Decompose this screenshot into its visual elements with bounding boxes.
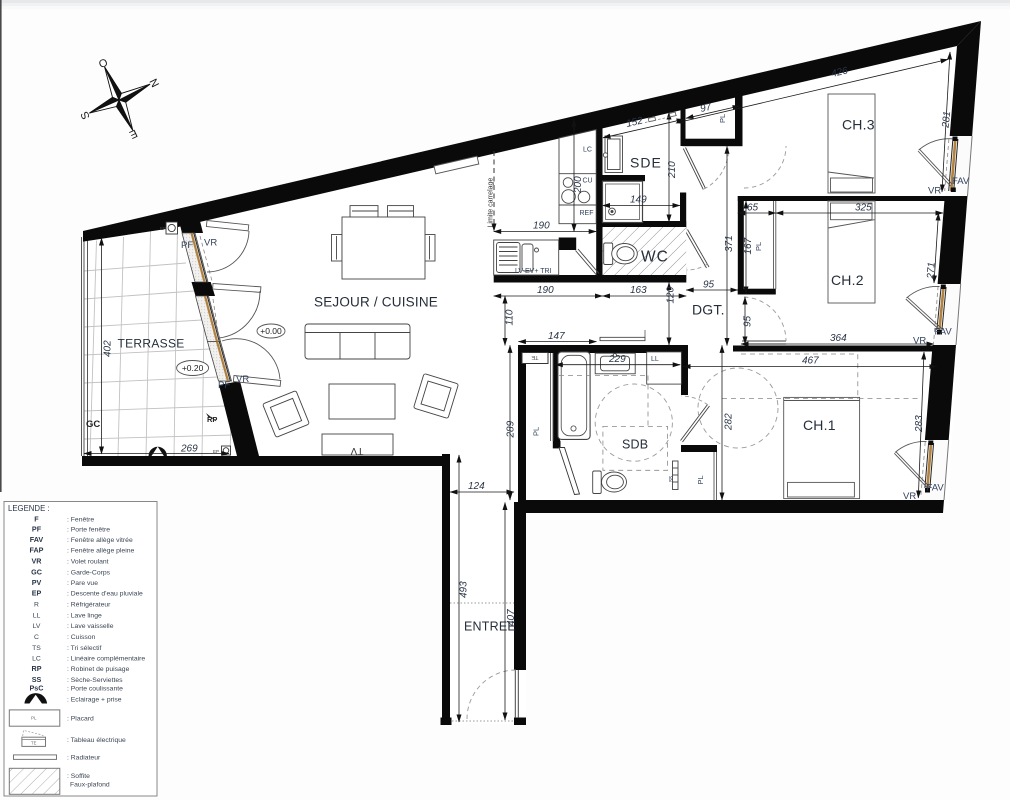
svg-text:95: 95 bbox=[703, 280, 715, 291]
svg-text:493: 493 bbox=[459, 581, 470, 598]
svg-text:REF: REF bbox=[580, 210, 594, 217]
svg-text:PL: PL bbox=[718, 114, 727, 123]
svg-text:+0.20: +0.20 bbox=[182, 363, 204, 373]
svg-text:467: 467 bbox=[802, 356, 819, 367]
svg-text:EP: EP bbox=[160, 226, 166, 231]
svg-text:VR: VR bbox=[236, 374, 249, 385]
svg-text:: Radiateur: : Radiateur bbox=[67, 755, 101, 762]
svg-text:TE: TE bbox=[31, 741, 37, 746]
svg-text:: Fenêtre: : Fenêtre bbox=[67, 517, 94, 524]
svg-text:GC: GC bbox=[86, 419, 100, 430]
svg-text:VR: VR bbox=[928, 186, 941, 197]
svg-text:F: F bbox=[34, 515, 39, 524]
svg-text:200: 200 bbox=[573, 176, 584, 194]
svg-text:FAP: FAP bbox=[30, 546, 44, 555]
svg-text:PL: PL bbox=[31, 716, 37, 721]
svg-text:C: C bbox=[34, 634, 39, 641]
svg-text:: Descente d'eau pluviale: : Descente d'eau pluviale bbox=[67, 591, 143, 598]
svg-text:167: 167 bbox=[743, 237, 754, 254]
svg-text:PV: PV bbox=[32, 578, 42, 587]
svg-text:325: 325 bbox=[855, 203, 872, 214]
svg-text:PL: PL bbox=[696, 475, 705, 484]
svg-text:: Soffite: : Soffite bbox=[67, 773, 90, 780]
svg-text:GC: GC bbox=[31, 567, 42, 576]
svg-text:: Lave linge: : Lave linge bbox=[67, 612, 102, 619]
svg-text:WC: WC bbox=[641, 249, 669, 266]
svg-text:: Porte coulissante: : Porte coulissante bbox=[67, 686, 123, 693]
svg-text:CH.1: CH.1 bbox=[803, 417, 836, 433]
svg-text:: Fenêtre allège pleine: : Fenêtre allège pleine bbox=[67, 548, 134, 555]
svg-text:: Placard: : Placard bbox=[67, 716, 94, 723]
svg-text:124: 124 bbox=[468, 481, 485, 492]
svg-text:: Réfrigérateur: : Réfrigérateur bbox=[67, 602, 111, 609]
svg-text:LC: LC bbox=[32, 656, 41, 663]
svg-text:: Pare vue: : Pare vue bbox=[67, 580, 98, 587]
svg-text:282: 282 bbox=[724, 413, 735, 431]
svg-text:SDE: SDE bbox=[630, 155, 662, 171]
svg-text:190: 190 bbox=[533, 221, 550, 232]
svg-text:+0.00: +0.00 bbox=[260, 326, 282, 336]
svg-text:SEJOUR / CUISINE: SEJOUR / CUISINE bbox=[314, 295, 438, 310]
svg-text:CH.3: CH.3 bbox=[842, 117, 875, 133]
svg-text:FAV: FAV bbox=[952, 176, 970, 187]
svg-text:371: 371 bbox=[724, 235, 735, 252]
svg-text:: Robinet de puisage: : Robinet de puisage bbox=[67, 666, 130, 673]
svg-text:CH.2: CH.2 bbox=[831, 272, 864, 288]
svg-text:210: 210 bbox=[667, 161, 678, 179]
svg-text:: Lave vaisselle: : Lave vaisselle bbox=[67, 623, 114, 630]
svg-text:TERRASSE: TERRASSE bbox=[118, 337, 185, 351]
svg-text:TE: TE bbox=[531, 354, 538, 360]
svg-text:364: 364 bbox=[830, 333, 847, 344]
svg-text:229: 229 bbox=[608, 354, 626, 365]
svg-text:LEGENDE :: LEGENDE : bbox=[8, 504, 50, 513]
svg-text:DGT.: DGT. bbox=[692, 302, 725, 318]
svg-text:LC: LC bbox=[583, 147, 592, 154]
svg-text:: Linéaire complémentaire: : Linéaire complémentaire bbox=[67, 656, 145, 663]
svg-text:402: 402 bbox=[103, 340, 114, 357]
svg-text:281: 281 bbox=[940, 111, 953, 130]
svg-text:FAV: FAV bbox=[927, 483, 945, 494]
svg-text:Faux-plafond: Faux-plafond bbox=[70, 782, 110, 789]
svg-text:: Garde-Corps: : Garde-Corps bbox=[67, 569, 111, 576]
svg-text:: Sèche-Serviettes: : Sèche-Serviettes bbox=[67, 677, 123, 684]
svg-text:407: 407 bbox=[506, 609, 517, 626]
svg-text:CU: CU bbox=[583, 178, 593, 185]
svg-text:FAV: FAV bbox=[30, 535, 44, 544]
svg-text:LL: LL bbox=[33, 612, 41, 619]
svg-text:PL: PL bbox=[754, 242, 763, 251]
svg-text:271: 271 bbox=[925, 262, 937, 280]
svg-text:190: 190 bbox=[537, 285, 554, 296]
svg-text:PsC: PsC bbox=[30, 684, 44, 693]
svg-text:Limite carrelage: Limite carrelage bbox=[488, 178, 495, 228]
svg-text:: Porte fenêtre: : Porte fenêtre bbox=[67, 526, 110, 533]
svg-text:283: 283 bbox=[914, 415, 925, 433]
svg-text:95: 95 bbox=[743, 315, 754, 327]
svg-text:: Tableau électrique: : Tableau électrique bbox=[67, 737, 126, 744]
svg-text:: Cuisson: : Cuisson bbox=[67, 634, 96, 641]
svg-text:LL: LL bbox=[651, 356, 659, 363]
svg-text:SDB: SDB bbox=[622, 438, 648, 452]
svg-text:PF: PF bbox=[218, 380, 230, 391]
svg-text:289: 289 bbox=[506, 420, 517, 438]
svg-text:: Volet roulant: : Volet roulant bbox=[67, 559, 109, 566]
svg-text:ss: ss bbox=[669, 476, 675, 482]
svg-text:65: 65 bbox=[747, 203, 759, 214]
svg-text:120: 120 bbox=[666, 286, 677, 303]
svg-text:163: 163 bbox=[630, 285, 647, 296]
svg-text:TV: TV bbox=[350, 445, 363, 456]
svg-text:RP: RP bbox=[32, 664, 42, 673]
svg-text:PL: PL bbox=[532, 427, 541, 436]
svg-text:149: 149 bbox=[630, 195, 647, 206]
svg-text:147: 147 bbox=[548, 331, 565, 342]
svg-text:LV EV+ TRI: LV EV+ TRI bbox=[515, 268, 552, 275]
svg-text:PF: PF bbox=[181, 240, 193, 251]
svg-text:: Tri sélectif: : Tri sélectif bbox=[67, 645, 101, 652]
svg-text:VR: VR bbox=[913, 336, 926, 347]
svg-text:269: 269 bbox=[180, 444, 198, 455]
svg-text:: Fenêtre allège vitrée: : Fenêtre allège vitrée bbox=[67, 537, 133, 544]
svg-text:TS: TS bbox=[32, 645, 41, 652]
svg-text:EP: EP bbox=[32, 589, 42, 598]
svg-text:110: 110 bbox=[505, 309, 516, 325]
svg-text:VR: VR bbox=[903, 491, 916, 502]
svg-text:VR: VR bbox=[32, 557, 43, 566]
svg-text:VR: VR bbox=[204, 238, 217, 249]
svg-text:: Eclairage + prise: : Eclairage + prise bbox=[67, 697, 122, 704]
svg-text:R: R bbox=[34, 602, 39, 609]
svg-text:PF: PF bbox=[32, 524, 42, 533]
svg-text:FAV: FAV bbox=[935, 327, 953, 338]
svg-text:LV: LV bbox=[33, 623, 41, 630]
